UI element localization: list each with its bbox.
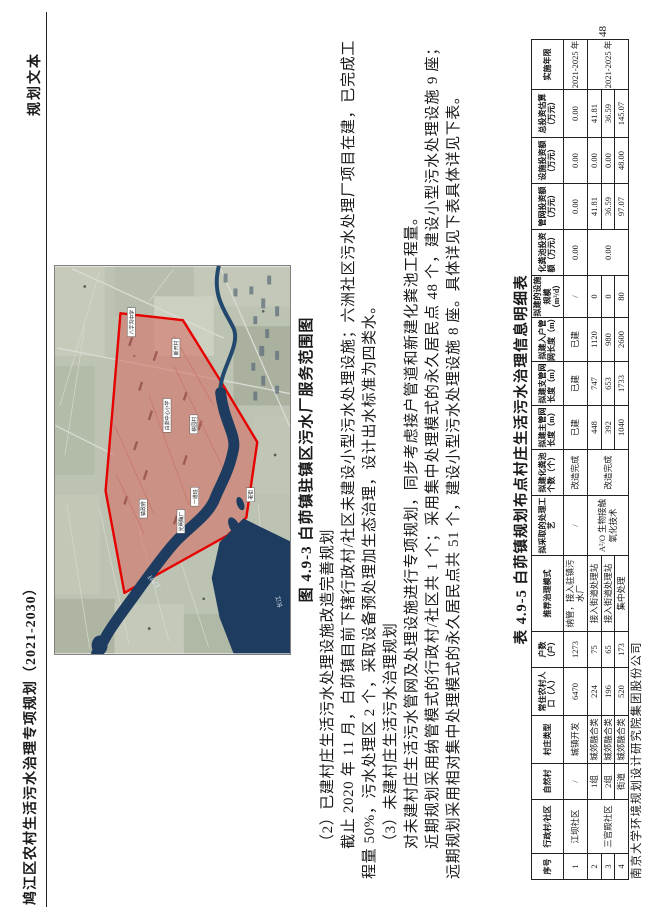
cell: 已建: [563, 318, 587, 362]
cell: 城郊融合类: [601, 716, 615, 764]
map-label: 桃园村: [190, 415, 198, 434]
cell: 1: [563, 854, 587, 880]
svg-text:白茆中心小学: 白茆中心小学: [164, 401, 171, 431]
table-title: 表 4.9-5 白茆镇规划布点村庄生活污水治理信息明细表: [510, 0, 531, 919]
cell: 1040: [615, 406, 629, 450]
body-text: （2）已建村庄生活污水处理设施改造完善规划 截止 2020 年 11 月，白茆镇…: [318, 40, 465, 879]
col-header: 自然村: [532, 764, 564, 800]
cell: 1733: [615, 362, 629, 406]
col-header: 化粪池投资额（万元）: [532, 230, 564, 276]
cell: 城镇开发: [563, 716, 587, 764]
cell: 0.00: [601, 138, 615, 184]
col-header: 行政村/社区: [532, 800, 564, 854]
col-header: 序号: [532, 854, 564, 880]
cell: 0.00: [588, 230, 629, 276]
cell: 城郊融合类: [615, 716, 629, 764]
cell: 1273: [563, 632, 587, 668]
table-header-row: 序号 行政村/社区 自然村 村庄类型 常住农村人口（人） 户数（户） 推荐治理模…: [532, 40, 564, 880]
svg-text:光明酶厂: 光明酶厂: [178, 512, 185, 532]
svg-text:八字沟中学: 八字沟中学: [128, 310, 135, 335]
col-header: 管网投资额（万元）: [532, 184, 564, 230]
cell: 江坝社区: [563, 800, 587, 854]
cell: 纳管，接入驻镇污水厂: [563, 556, 587, 632]
cell: 145.07: [615, 90, 629, 138]
cell: 0.00: [588, 138, 602, 184]
cell: 城郊融合类: [588, 716, 602, 764]
col-header: 总投资估算（万元）: [532, 90, 564, 138]
page-number: 48: [597, 26, 609, 37]
svg-text:老街: 老街: [247, 490, 254, 500]
cell: 集中处理: [615, 556, 629, 632]
page-header-title: 鸠江区农村生活污水治理专项规划（2021-2030）: [20, 580, 40, 905]
cell: 0: [588, 276, 602, 318]
cell: 41.81: [588, 184, 602, 230]
cell: 0.00: [563, 90, 587, 138]
table-row: 1 江坝社区 / 城镇开发 6470 1273 纳管，接入驻镇污水厂 / 改造完…: [563, 40, 587, 880]
col-header: 拟建支管网长度（m）: [532, 362, 564, 406]
col-header: 常住农村人口（人）: [532, 668, 564, 716]
svg-text:新开村: 新开村: [173, 340, 180, 355]
cell: 36.59: [601, 184, 615, 230]
cell: 747: [588, 362, 602, 406]
cell: 980: [601, 318, 615, 362]
cell: 2: [588, 854, 602, 880]
cell: 0.00: [563, 138, 587, 184]
footer-company: 南京大学环境规划设计研究院集团股份公司: [628, 642, 644, 880]
cell: 196: [601, 668, 615, 716]
cell: 2021-2025 年: [563, 40, 587, 90]
cell: 2组: [601, 764, 615, 800]
cell: 改造完成: [588, 450, 629, 496]
cell: 3: [601, 854, 615, 880]
cell: 接入街道处理站: [601, 556, 615, 632]
cell: 6470: [563, 668, 587, 716]
cell: /: [563, 276, 587, 318]
cell: 接入街道处理站: [588, 556, 602, 632]
table-row: 2 三官殿社区 1组 城郊融合类 224 75 接入街道处理站 A²/O 生物接…: [588, 40, 602, 880]
satellite-map-figure: 八字沟中学 白茆中心小学 桃园村 新开村 镇政府 光明酶厂 一道班 老街 上六圩: [54, 265, 291, 655]
col-header: 户数（户）: [532, 632, 564, 668]
cell: 1120: [588, 318, 602, 362]
para-3-body-1: 对未建村庄生活污水管网及处理设施进行专项规划，同步考虑接户管道和新建化粪池工程量…: [402, 40, 423, 879]
cell: 0.00: [563, 184, 587, 230]
col-header: 实施年限: [532, 40, 564, 90]
para-3-body-2: 近期规划采用纳管模式的行政村/社区共 1 个；采用集中处理模式的永久居民点 48…: [423, 40, 465, 879]
cell: 75: [588, 632, 602, 668]
cell: 36.59: [601, 90, 615, 138]
cell: 三官殿社区: [588, 800, 629, 854]
map-label: 光明酶厂: [177, 510, 185, 534]
document-page-screenshot: { "header": { "title": "鸠江区农村生活污水治理专项规划（…: [0, 0, 650, 919]
rotated-landscape-page: 鸠江区农村生活污水治理专项规划（2021-2030） 规划文本: [0, 0, 650, 919]
cell: 已建: [563, 406, 587, 450]
cell: 已建: [563, 362, 587, 406]
col-header: 推荐治理模式: [532, 556, 564, 632]
map-label: 一道班: [191, 487, 199, 506]
cell: 653: [601, 362, 615, 406]
page-header-doctype: 规划文本: [24, 52, 44, 116]
col-header: 拟建入户管网长度（m）: [532, 318, 564, 362]
wastewater-plan-table: 序号 行政村/社区 自然村 村庄类型 常住农村人口（人） 户数（户） 推荐治理模…: [531, 39, 629, 880]
cell: 173: [615, 632, 629, 668]
cell: 41.81: [588, 90, 602, 138]
header-rule: [46, 12, 47, 907]
cell: 65: [601, 632, 615, 668]
map-label: 八字沟中学: [127, 308, 135, 337]
svg-text:桃园村: 桃园村: [191, 417, 198, 432]
cell: 48.00: [615, 138, 629, 184]
cell: 2600: [615, 318, 629, 362]
col-header: 村庄类型: [532, 716, 564, 764]
satellite-map: 八字沟中学 白茆中心小学 桃园村 新开村 镇政府 光明酶厂 一道班 老街 上六圩: [55, 266, 290, 654]
cell: 2021-2025 年: [588, 40, 629, 90]
map-label: 新开村: [172, 339, 180, 358]
svg-text:镇政府: 镇政府: [140, 501, 147, 516]
cell: 0.00: [563, 230, 587, 276]
svg-text:一道班: 一道班: [192, 489, 199, 504]
col-header: 拟建化粪池个数（个）: [532, 450, 564, 496]
col-header: 拟建主管网长度（m）: [532, 406, 564, 450]
cell: 448: [588, 406, 602, 450]
cell: 520: [615, 668, 629, 716]
cell: 4: [615, 854, 629, 880]
cell: /: [563, 496, 587, 556]
cell: 改造完成: [563, 450, 587, 496]
para-2-heading: （2）已建村庄生活污水处理设施改造完善规划: [318, 40, 339, 879]
cell: A²/O 生物接触氧化技术: [588, 496, 629, 556]
cell: 392: [601, 406, 615, 450]
map-label: 镇政府: [139, 499, 147, 518]
map-label: 老街: [246, 488, 254, 502]
figure-caption: 图 4.9-3 白茆镇驻镇区污水厂服务范围图: [295, 0, 316, 919]
map-label: 白茆中心小学: [163, 399, 171, 433]
cell: 224: [588, 668, 602, 716]
cell: 1组: [588, 764, 602, 800]
cell: 80: [615, 276, 629, 318]
cell: /: [563, 764, 587, 800]
cell: 97.07: [615, 184, 629, 230]
col-header: 拟建的设施规模（m³/d）: [532, 276, 564, 318]
cell: 街道: [615, 764, 629, 800]
para-2-body: 截止 2020 年 11 月，白茆镇目前下辖行政村/社区未建设小型污水处理设施；…: [339, 40, 381, 879]
col-header: 拟采取的处理工艺: [532, 496, 564, 556]
para-3-heading: （3）未建村庄生活污水治理规划: [381, 40, 402, 879]
cell: 0: [601, 276, 615, 318]
col-header: 设施投资额（万元）: [532, 138, 564, 184]
